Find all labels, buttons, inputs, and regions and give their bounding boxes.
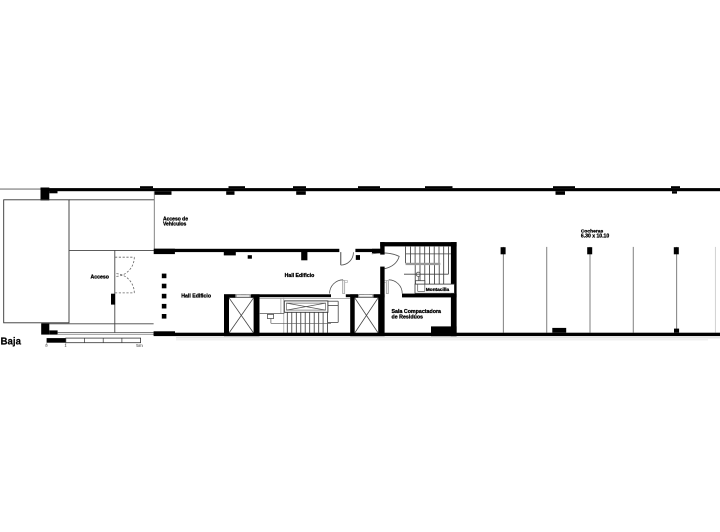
svg-text:5m: 5m: [136, 343, 143, 349]
svg-text:Montacilla: Montacilla: [426, 287, 450, 293]
svg-text:Acceso: Acceso: [91, 275, 109, 281]
svg-text:Hall Edificio: Hall Edificio: [285, 273, 315, 279]
svg-text:6.30 x 10.10: 6.30 x 10.10: [581, 234, 609, 240]
svg-text:de Residúos: de Residúos: [392, 314, 424, 320]
svg-text:Baja: Baja: [1, 336, 22, 347]
svg-text:Vehículos: Vehículos: [163, 222, 187, 228]
svg-text:Hall Edificio: Hall Edificio: [181, 293, 211, 299]
